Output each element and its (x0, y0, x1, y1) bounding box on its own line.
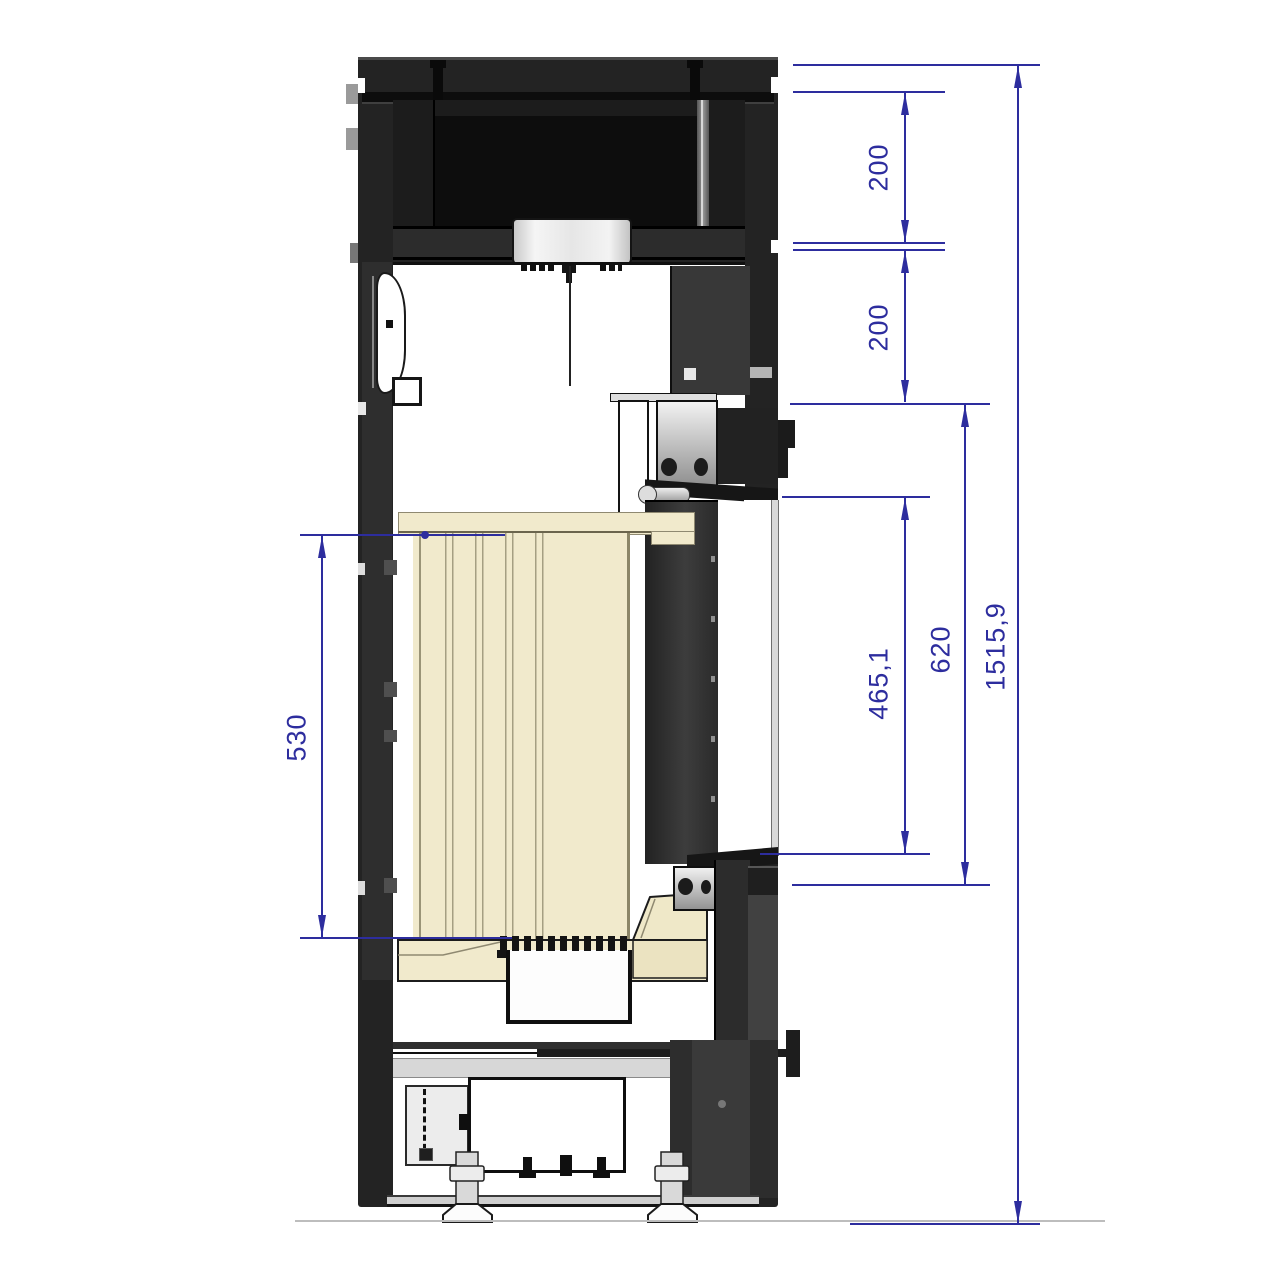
left-wall-clip (384, 730, 397, 742)
baffle-step (651, 531, 695, 545)
left-wall-notch (358, 78, 365, 93)
arrow-down-icon (1014, 1201, 1022, 1223)
closer-bracket-ear (778, 420, 795, 448)
door-curve-line (372, 276, 374, 388)
left-wall-notch (358, 402, 366, 415)
right-wall-notch (771, 77, 778, 93)
dimension-line-465 (904, 498, 906, 853)
upper-door-frame-box (670, 266, 750, 395)
column-vent-hole (711, 796, 715, 802)
dimension-label-200-upper: 200 (864, 258, 895, 398)
vermiculite-back-panel (413, 533, 630, 941)
right-floor-brick (633, 940, 707, 978)
top-door-closer-bracket (718, 408, 778, 484)
dimension-label-200-top: 200 (864, 98, 895, 238)
top-bolt-shaft (433, 60, 443, 100)
dimension-line-530 (321, 536, 323, 937)
dimension-label-465: 465,1 (864, 614, 895, 754)
curved-door-glass (376, 272, 406, 394)
arrow-down-icon (318, 915, 326, 937)
ash-chute (508, 950, 630, 1022)
extension-line (300, 534, 505, 536)
extension-line (760, 853, 930, 855)
right-wall-notch (771, 240, 778, 253)
arrow-up-icon (901, 93, 909, 115)
flue-collar (512, 218, 632, 268)
stove-section-drawing: 200 200 465,1 620 530 1515,9 (0, 0, 1280, 1280)
adjustable-foot (443, 1152, 492, 1222)
column-vent-hole (711, 556, 715, 562)
adjustable-foot (648, 1152, 697, 1222)
arrow-up-icon (961, 405, 969, 427)
hinge-screw (694, 458, 708, 476)
extension-line (793, 242, 945, 244)
dimension-line-620 (964, 405, 966, 884)
rear-panel-nub (346, 128, 358, 150)
ceiling-tick-row (521, 265, 557, 271)
right-wall-slot (750, 367, 772, 378)
column-vent-hole (711, 616, 715, 622)
rod-end-hook (786, 1030, 800, 1077)
top-edge-highlight (358, 57, 778, 60)
arrow-down-icon (961, 862, 969, 884)
door-glass-pane (771, 500, 779, 856)
left-wall-clip (384, 682, 397, 697)
arrow-down-icon (901, 831, 909, 853)
dimension-label-620: 620 (926, 580, 957, 720)
door-latch-square (386, 320, 393, 328)
arrow-up-icon (901, 251, 909, 273)
adjustable-feet (435, 1145, 705, 1227)
arrow-up-icon (318, 536, 326, 558)
extension-line (790, 403, 990, 405)
door-latch-parts (748, 866, 778, 895)
air-inlet-tab (392, 377, 422, 406)
extension-line (793, 64, 1040, 66)
floor-line (295, 1220, 1105, 1222)
dimension-label-1515: 1515,9 (981, 577, 1012, 717)
extension-line (793, 91, 945, 93)
ceiling-tick-row (600, 265, 622, 271)
left-wall-notch (358, 563, 365, 575)
left-wall-notch (358, 881, 365, 895)
lower-column-face (748, 895, 778, 1042)
dimension-label-530: 530 (282, 668, 313, 808)
lower-door-column (714, 860, 750, 1042)
box-side-bolt (459, 1114, 471, 1130)
combustion-grate-teeth (500, 936, 630, 951)
flue-baffle-edge-line (569, 266, 571, 386)
left-wall-clip (384, 560, 397, 575)
frame-box-slot (684, 368, 696, 380)
extension-line (850, 1223, 1040, 1225)
column-vent-hole (711, 676, 715, 682)
dimension-line-1515 (1017, 66, 1019, 1223)
arrow-up-icon (901, 498, 909, 520)
rear-panel-nub (346, 84, 358, 104)
closer-bracket-ear (778, 448, 788, 478)
rear-panel-nub (350, 243, 358, 263)
extension-line (793, 249, 945, 251)
pedestal-bolt-dot (718, 1100, 726, 1108)
reference-dot (421, 531, 429, 539)
extension-line (300, 937, 512, 939)
hinge-screw (661, 458, 677, 476)
lower-hinge-screw (701, 880, 711, 894)
extension-line (792, 884, 990, 886)
lower-hinge-screw (678, 878, 693, 895)
column-vent-hole (711, 736, 715, 742)
door-inner-column (645, 500, 718, 864)
arrow-down-icon (901, 380, 909, 402)
arrow-up-icon (1014, 66, 1022, 88)
base-small-clip (419, 1148, 433, 1161)
top-bolt-shaft (690, 60, 700, 100)
arrow-down-icon (901, 220, 909, 242)
